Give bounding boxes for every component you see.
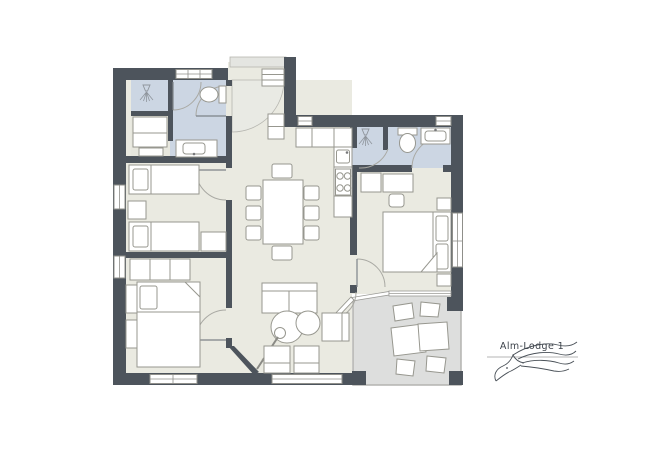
pillow — [133, 169, 148, 190]
dining-table — [263, 180, 303, 244]
floor-plan-page: Alm-Lodge 1 — [0, 0, 650, 450]
pillow — [436, 216, 448, 241]
dining-chair — [246, 206, 261, 220]
dresser — [201, 232, 226, 251]
wall-left — [113, 68, 126, 385]
wall-shower-divider — [168, 80, 173, 111]
terrace-post — [352, 371, 366, 385]
wall-bath-right-bottom — [443, 165, 451, 172]
toilet-bowl — [400, 134, 416, 153]
horse-logo-mane — [521, 366, 569, 371]
entry-door-leaf — [230, 57, 286, 67]
pillow — [436, 244, 448, 269]
closet — [133, 117, 167, 147]
dining-chair — [272, 164, 292, 178]
shoe-cabinet — [262, 69, 284, 86]
nightstand — [126, 320, 137, 348]
desk — [383, 174, 413, 192]
kitchen-faucet — [346, 151, 349, 154]
vanity-sink — [183, 143, 205, 154]
cabinet — [361, 173, 381, 192]
desk-chair — [389, 194, 404, 207]
lounge-chair — [294, 346, 319, 373]
dining-chair — [304, 206, 319, 220]
wall-niche-top — [131, 111, 170, 116]
horse-logo-head — [495, 355, 524, 381]
nightstand — [126, 285, 137, 313]
horse-logo-mane — [522, 360, 574, 364]
wardrobe — [130, 259, 190, 280]
terrace-chair — [420, 302, 440, 317]
toilet-bowl — [200, 87, 218, 102]
coffee-table-small — [296, 311, 320, 335]
closet-drawer — [139, 148, 163, 156]
terrace-post — [449, 371, 463, 385]
wall-niche-right — [168, 111, 173, 141]
pillow — [133, 226, 148, 247]
dining-chair — [304, 226, 319, 240]
horse-logo-eye — [506, 367, 508, 369]
horse-logo-mane — [518, 351, 576, 359]
terrace-chair — [426, 356, 446, 373]
toilet-tank — [219, 86, 226, 103]
wall-entry-pillar — [284, 57, 296, 120]
pillow — [140, 286, 157, 309]
armchair — [322, 313, 349, 341]
dining-chair — [272, 246, 292, 260]
terrace-chair — [396, 359, 415, 376]
terrace-chair — [393, 303, 414, 321]
floor-lamp-head — [275, 328, 286, 339]
kitchen-counter — [296, 128, 352, 147]
nightstand — [128, 201, 146, 219]
dining-chair — [246, 186, 261, 200]
wall-bedrooms-divider — [126, 252, 232, 258]
nightstand — [437, 198, 451, 210]
nightstand — [437, 274, 451, 286]
wall-spine — [226, 80, 232, 86]
terrace-table — [418, 322, 449, 351]
wall-right — [451, 115, 463, 297]
vanity-faucet — [434, 129, 437, 132]
plan-title: Alm-Lodge 1 — [470, 341, 594, 352]
vanity-sink — [425, 131, 446, 141]
dining-chair — [246, 226, 261, 240]
floor-plan — [0, 0, 650, 450]
wall-kitchen — [350, 285, 357, 293]
lounge-chair — [264, 346, 290, 373]
terrace-post — [447, 297, 463, 311]
dining-chair — [304, 186, 319, 200]
vanity-faucet — [193, 153, 196, 156]
wall-shower-divider — [383, 127, 388, 150]
